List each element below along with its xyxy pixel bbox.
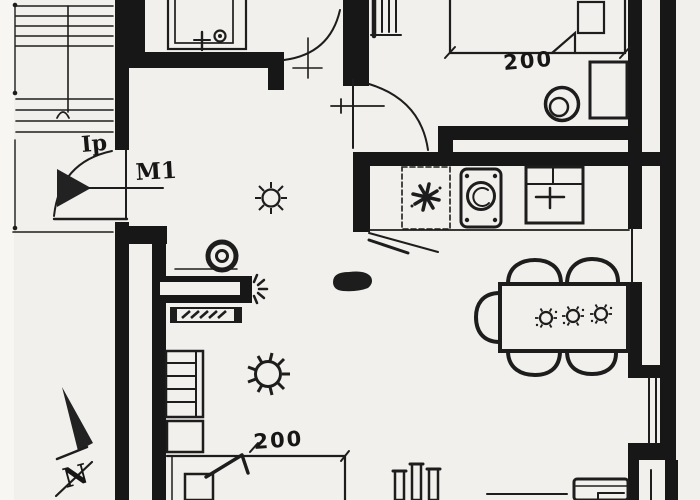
paper-margin <box>0 0 14 500</box>
partition-wall-stub <box>160 276 252 303</box>
floor-plan-drawing: Ip M1 200 <box>0 0 700 500</box>
wall-type-label: M1 <box>135 157 178 186</box>
bed-bottom-dimension: 200 <box>253 427 304 454</box>
bed-top-dimension: 200 <box>502 47 554 75</box>
entry-door-label: Ip <box>80 130 108 158</box>
floor-plan: Ip M1 200 <box>0 0 700 500</box>
ink-blob <box>333 272 372 292</box>
